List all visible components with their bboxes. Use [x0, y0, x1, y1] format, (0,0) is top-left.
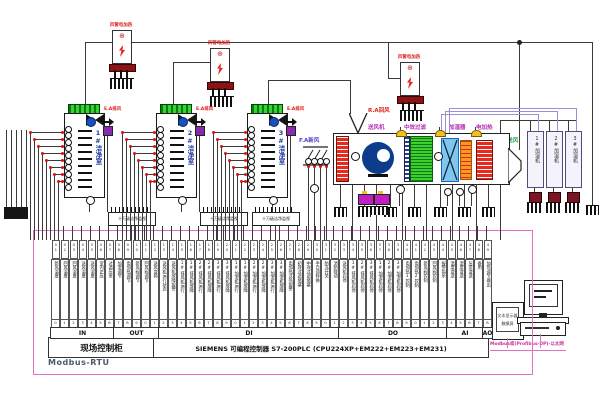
connector-comb — [334, 207, 347, 217]
signal-label-text: 回风温度 — [62, 261, 66, 278]
junction-dot — [61, 145, 64, 148]
terminal-signal-label: 2#排风机启停 — [357, 259, 366, 321]
terminal-tag: 06 — [97, 240, 105, 259]
duct-heater: ⊕ — [210, 48, 230, 82]
signal-label-text: 3#加湿机故障 — [278, 261, 282, 293]
room-signal-wire — [30, 132, 31, 240]
terminal-signal-label: 回风湿度 — [69, 259, 78, 321]
duct-sensor — [444, 188, 452, 196]
terminal-signal-label: 电加热1控制 — [402, 259, 411, 321]
connector-comb — [358, 206, 388, 215]
wire — [464, 183, 465, 207]
terminal-wire-stub — [297, 226, 298, 240]
heater-leg — [126, 70, 128, 78]
signal-label-text: 电加热2控制 — [413, 261, 417, 288]
wire — [21, 130, 22, 207]
terminal-signal-label: 1#加湿机启停 — [375, 259, 384, 321]
terminal-signal-label: 1#加湿机运行 — [231, 259, 240, 321]
humidifier-control-wire — [557, 111, 558, 131]
terminal-wire-stub — [72, 226, 73, 240]
io-section-label: DI — [245, 330, 252, 337]
terminal-signal-label: 送风温度 — [78, 259, 87, 321]
room-sensor — [178, 196, 187, 205]
label-return-air: R.A回风 — [368, 109, 390, 115]
wire — [268, 80, 269, 104]
terminal-wire-stub — [324, 226, 325, 240]
room-name: 2#洁净室 — [185, 129, 193, 187]
exhaust-arrow-head — [201, 118, 206, 126]
label-fresh-air: F.A新风 — [299, 139, 319, 145]
io-section-cell: DI — [158, 327, 340, 339]
wire — [352, 183, 353, 240]
actuator-stem — [439, 127, 440, 130]
ahu-sensor — [434, 152, 443, 161]
terminal-signal-label: 3#加湿机故障 — [276, 259, 285, 321]
room-name: 1#洁净室 — [93, 129, 101, 187]
room-signal-wire — [150, 181, 151, 240]
room-signal-wire — [213, 132, 214, 240]
terminal-wire-stub — [279, 226, 280, 240]
terminal-signal-label: 加湿调节 — [114, 259, 123, 321]
medium-filter-element — [410, 136, 433, 182]
io-section-label: DO — [388, 330, 398, 337]
junction-dot — [61, 166, 64, 169]
junction-dot — [57, 180, 60, 183]
terminal-wire-stub — [486, 226, 487, 240]
damper-actuator — [471, 130, 482, 137]
junction-dot — [61, 180, 64, 183]
terminal-signal-label: 回风温度 — [60, 259, 69, 321]
terminal-signal-label: 新风阀控制 — [420, 259, 429, 321]
exhaust-air-label: E.A排风 — [287, 108, 304, 113]
room-shelf-bars — [170, 130, 184, 188]
room-signal-wire — [130, 146, 131, 240]
outlet-circle — [157, 184, 164, 191]
supply-outlet-cone — [508, 148, 522, 184]
io-section-label: OUT — [129, 330, 143, 337]
terminal-wire-stub — [288, 226, 289, 240]
terminal-tag: 24 — [259, 240, 267, 259]
terminal-signal-label: 新风温度 — [51, 259, 60, 321]
unit-connector — [529, 192, 542, 203]
room-signal-wire — [217, 139, 218, 240]
room-signal-wire — [46, 160, 47, 240]
junction-dot — [61, 159, 64, 162]
terminal-signal-label: 1#排风机运行 — [177, 259, 186, 321]
wire — [350, 80, 351, 114]
signal-label-text: 3#排风机故障 — [224, 261, 228, 293]
humidifier-pump — [358, 194, 374, 205]
connector-comb — [110, 78, 134, 89]
junction-dot — [240, 180, 243, 183]
terminal-tag: 23 — [250, 240, 258, 259]
terminal-wire-stub — [162, 226, 163, 240]
terminal-signal-label: 送风湿度 — [87, 259, 96, 321]
signal-label-text: 1#排风机故障 — [188, 261, 192, 293]
io-section-label: AO — [483, 330, 493, 337]
exhaust-air-label: E.A排风 — [196, 108, 213, 113]
room-monitor-box: 十万级洁净监视 — [252, 212, 300, 226]
wire — [390, 183, 391, 207]
signal-label-text: 湿度变送 — [458, 261, 462, 278]
wire — [199, 134, 200, 212]
io-section-cell: OUT — [113, 327, 160, 339]
signal-label-text: 手自动转换 — [314, 261, 318, 283]
terminal-tag: 20 — [223, 240, 231, 259]
damper-actuator-box — [286, 126, 296, 136]
signal-label-text: 3#加湿机启停 — [395, 261, 399, 293]
humidifier-control-wire — [441, 114, 539, 115]
terminal-tag: 37 — [376, 240, 384, 259]
unit-connector — [567, 192, 580, 203]
wire — [426, 183, 427, 240]
humidifier-unit-name: 2#加湿机 — [550, 136, 558, 183]
terminal-signal-label: 送风机故障报警 — [168, 259, 177, 321]
room-signal-wire — [229, 160, 230, 240]
heater-leg — [218, 88, 220, 96]
signal-label-text: 1#排风机启停 — [350, 261, 354, 293]
terminal-wire-stub — [189, 226, 190, 240]
terminal-signal-label: 3#排风机故障 — [222, 259, 231, 321]
junction-dot — [33, 138, 36, 141]
terminal-wire-stub — [198, 226, 199, 240]
terminal-wire-stub — [477, 226, 478, 240]
signal-label-text: 送风机运行状态 — [161, 261, 165, 291]
room-sensor — [86, 196, 95, 205]
io-section-label: IN — [79, 330, 86, 337]
signal-label-text: 3#加湿机运行 — [269, 261, 273, 293]
terminal-wire-stub — [459, 226, 460, 240]
signal-label-text: 防冻开关 — [323, 261, 327, 278]
junction-dot — [145, 173, 148, 176]
terminal-wire-stub — [153, 226, 154, 240]
wire — [290, 134, 291, 212]
wire — [16, 130, 17, 207]
terminal-tag: 05 — [88, 240, 96, 259]
signal-label-text: 压差变送 — [467, 261, 471, 278]
terminal-wire-stub — [171, 226, 172, 240]
connector-comb — [408, 207, 421, 217]
terminal-wire-stub — [225, 226, 226, 240]
room-monitor-box: 十万级洁净监视 — [108, 212, 156, 226]
wire — [85, 42, 86, 104]
terminal-tag: 33 — [340, 240, 348, 259]
signal-label-text: 回风阀控制 — [431, 261, 435, 283]
terminal-tag: 12 — [151, 240, 159, 259]
signal-label-text: 新风阀调节 — [134, 261, 138, 283]
io-section-cell: AO — [482, 327, 493, 339]
signal-label-text: 初效过滤堵塞 — [296, 261, 300, 287]
wire — [173, 62, 211, 63]
label-filter: 中效过滤 — [404, 126, 426, 132]
terminal-tag: 46 — [457, 240, 465, 259]
junction-dot — [216, 138, 219, 141]
signal-label-text: 1#排风机运行 — [179, 261, 183, 293]
junction-dot — [61, 138, 64, 141]
room-shelf-bars — [78, 130, 92, 188]
terminal-signal-label: 回风阀控制 — [429, 259, 438, 321]
junction-dot — [212, 131, 215, 134]
terminal-tag: 29 — [304, 240, 312, 259]
terminal-wire-stub — [126, 226, 127, 240]
wire — [268, 80, 350, 81]
terminal-tag: 40 — [403, 240, 411, 259]
room-signal-wire — [122, 132, 123, 240]
terminal-tag: 11 — [142, 240, 150, 259]
signal-label-text: 2#加湿机故障 — [260, 261, 264, 293]
heater-leg — [114, 70, 116, 78]
heater-leg — [224, 88, 226, 96]
signal-label-text: 送风机启停 — [341, 261, 345, 283]
terminal-tag: 18 — [205, 240, 213, 259]
signal-label-text: 电加热1控制 — [404, 261, 408, 288]
signal-label-text: 室内正压 — [98, 261, 102, 278]
terminal-signal-label: 回风阀调节 — [141, 259, 150, 321]
terminal-signal-label: 3#排风机启停 — [366, 259, 375, 321]
signal-label-text: 回风湿度 — [71, 261, 75, 278]
pc-power-led — [556, 326, 560, 330]
room-signal-wire — [213, 132, 247, 133]
junction-dot — [45, 159, 48, 162]
wire — [471, 192, 472, 206]
terminal-signal-label: 湿度变送 — [456, 259, 465, 321]
connector-comb — [527, 202, 542, 213]
junction-dot — [41, 152, 44, 155]
junction-box — [4, 207, 28, 219]
label-humidifier: 加湿器 — [449, 126, 466, 132]
terminal-tag: 17 — [196, 240, 204, 259]
room-signal-wire — [34, 139, 35, 240]
terminal-signal-label: 送风变频 — [150, 259, 159, 321]
room-shelf-bars — [261, 130, 275, 188]
junction-dot — [137, 159, 140, 162]
terminal-wire-stub — [234, 226, 235, 240]
junction-dot — [325, 165, 328, 168]
terminal-signal-label: 3#加湿机启停 — [393, 259, 402, 321]
terminal-signal-label: 室内正压 — [96, 259, 105, 321]
terminal-wire-stub — [468, 226, 469, 240]
terminal-signal-label: 电加热调节 — [123, 259, 132, 321]
terminal-signal-label: 电加热2控制 — [411, 259, 420, 321]
junction-dot — [61, 131, 64, 134]
junction-dot — [244, 145, 247, 148]
terminal-signal-label: 报警指示 — [438, 259, 447, 321]
wire-junction-dot — [517, 40, 522, 45]
connector-comb — [434, 207, 447, 217]
junction-dot — [149, 180, 152, 183]
terminal-wire-stub — [180, 226, 181, 240]
signal-label-text: 1#加湿机启停 — [377, 261, 381, 293]
wire — [26, 130, 27, 207]
terminal-tag: 26 — [277, 240, 285, 259]
signal-label-text: 加热调节输出 — [485, 261, 489, 287]
terminal-signal-label: 防冻开关 — [321, 259, 330, 321]
room-sensor — [269, 196, 278, 205]
junction-dot — [220, 145, 223, 148]
terminal-wire-stub — [261, 226, 262, 240]
connector-comb — [400, 110, 424, 121]
junction-dot — [313, 165, 316, 168]
terminal-tag: 36 — [367, 240, 375, 259]
terminal-signal-label: 压差变送 — [465, 259, 474, 321]
terminal-wire-stub — [432, 226, 433, 240]
terminal-signal-label: 1#排风机启停 — [348, 259, 357, 321]
terminal-tag: 47 — [466, 240, 474, 259]
signal-label-text: 过滤压差 — [107, 261, 111, 278]
terminal-tag: 35 — [358, 240, 366, 259]
heater-leg — [120, 70, 122, 78]
room-signal-wire — [50, 167, 51, 240]
terminal-wire-stub — [108, 226, 109, 240]
terminal-tag: 44 — [439, 240, 447, 259]
signal-label-text: 3#排风机启停 — [368, 261, 372, 293]
terminal-wire-stub — [441, 226, 442, 240]
terminal-wire-stub — [333, 226, 334, 240]
connector-comb — [482, 207, 495, 217]
terminal-signal-label: 1#排风机故障 — [186, 259, 195, 321]
duct-heater-label: 风管电加热 — [208, 42, 231, 47]
wire — [173, 62, 174, 104]
wire — [440, 183, 441, 207]
return-heater-element — [336, 136, 349, 182]
ahu-sensor — [351, 152, 360, 161]
junction-dot — [153, 180, 156, 183]
terminal-signal-label: 2#加湿机运行 — [249, 259, 258, 321]
wire — [275, 224, 276, 240]
signal-label-text: 送风变频 — [152, 261, 156, 278]
junction-dot — [37, 145, 40, 148]
terminal-wire-stub — [54, 226, 55, 240]
io-section-label: AI — [462, 330, 469, 337]
terminal-wire-stub — [414, 226, 415, 240]
damper-actuator-box — [195, 126, 205, 136]
terminal-tag: 10 — [133, 240, 141, 259]
signal-label-text: 消防联动 — [332, 261, 336, 278]
lightning-icon — [216, 61, 224, 80]
terminal-tag: 38 — [385, 240, 393, 259]
room-signal-wire — [34, 139, 64, 140]
signal-label-text: 新风阀控制 — [422, 261, 426, 283]
room-name: 3#洁净室 — [276, 129, 284, 187]
terminal-wire-stub — [243, 226, 244, 240]
terminal-wire-stub — [369, 226, 370, 240]
signal-label-text: 2#排风机故障 — [206, 261, 210, 293]
return-air-funnel — [349, 113, 368, 134]
wire — [340, 183, 341, 207]
junction-dot — [53, 173, 56, 176]
junction-dot — [121, 131, 124, 134]
comm-wire — [540, 334, 541, 348]
terminal-tag: 49 — [484, 240, 492, 259]
junction-dot — [61, 173, 64, 176]
humidifier-grid-element — [460, 140, 472, 180]
terminal-wire-stub — [342, 226, 343, 240]
wire — [414, 183, 415, 207]
room-signal-wire — [42, 153, 43, 240]
outlet-circle — [65, 184, 72, 191]
junction-dot — [153, 131, 156, 134]
terminal-wire-stub — [270, 226, 271, 240]
signal-label-text: 2#排风机启停 — [359, 261, 363, 293]
wire — [131, 224, 132, 240]
terminal-signal-label: 初效过滤堵塞 — [294, 259, 303, 321]
terminal-tag: 48 — [475, 240, 483, 259]
terminal-tag: 34 — [349, 240, 357, 259]
wire — [399, 192, 400, 206]
junction-dot — [153, 173, 156, 176]
room-signal-wire — [126, 139, 127, 240]
connector-comb — [210, 96, 234, 107]
terminal-wire-stub — [360, 226, 361, 240]
junction-dot — [244, 159, 247, 162]
wire — [549, 120, 550, 131]
terminal-tag: 08 — [115, 240, 123, 259]
signal-label-text: 3#排风机运行 — [215, 261, 219, 293]
junction-dot — [153, 166, 156, 169]
room-signal-wire — [58, 181, 59, 240]
terminal-tag: 30 — [313, 240, 321, 259]
terminal-signal-label: 送风机运行状态 — [159, 259, 168, 321]
humidifier-pump — [374, 194, 390, 205]
damper-linkage-circle — [323, 158, 330, 165]
duct-heater-label: 风管电加热 — [398, 56, 421, 61]
terminal-wire-stub — [252, 226, 253, 240]
fan-base — [368, 174, 388, 177]
signal-label-text: 送风温度 — [80, 261, 84, 278]
junction-dot — [224, 152, 227, 155]
terminal-signal-label: 中效过滤堵塞 — [303, 259, 312, 321]
terminal-wire-stub — [63, 226, 64, 240]
room-signal-wire — [217, 139, 247, 140]
exhaust-arrow-head — [109, 118, 114, 126]
lightning-icon — [118, 43, 126, 62]
signal-label-text: 回风阀调节 — [143, 261, 147, 283]
pc-screen — [529, 284, 558, 307]
terminal-tag: 41 — [412, 240, 420, 259]
room-signal-wire — [30, 132, 64, 133]
exhaust-arrow-head — [292, 118, 297, 126]
signal-label-text: 送风机故障报警 — [170, 261, 174, 291]
terminal-wire-stub — [315, 226, 316, 240]
signal-label-text: 送风湿度 — [89, 261, 93, 278]
junction-dot — [153, 145, 156, 148]
terminal-signal-label: 手自动转换 — [312, 259, 321, 321]
terminal-signal-label: 2#加湿机故障 — [258, 259, 267, 321]
wire — [11, 130, 12, 207]
terminal-tag: 16 — [187, 240, 195, 259]
terminal-wire-stub — [423, 226, 424, 240]
junction-dot — [244, 138, 247, 141]
connector-comb — [458, 207, 471, 217]
humidifier-control-wire — [576, 108, 577, 131]
duct-heater: ⊕ — [400, 62, 420, 96]
wire — [530, 120, 531, 131]
terminal-tag: 42 — [421, 240, 429, 259]
dial-icon: ⊕ — [217, 51, 223, 58]
terminal-tag: 25 — [268, 240, 276, 259]
terminal-tag: 28 — [295, 240, 303, 259]
electric-heater-element — [476, 140, 493, 180]
terminal-tag: 43 — [430, 240, 438, 259]
wire — [107, 134, 108, 212]
junction-dot — [244, 131, 247, 134]
junction-dot — [319, 165, 322, 168]
wire — [320, 166, 321, 240]
room-signal-wire — [126, 139, 156, 140]
room-signal-wire — [241, 181, 242, 240]
heater-leg — [402, 102, 404, 110]
junction-dot — [244, 173, 247, 176]
